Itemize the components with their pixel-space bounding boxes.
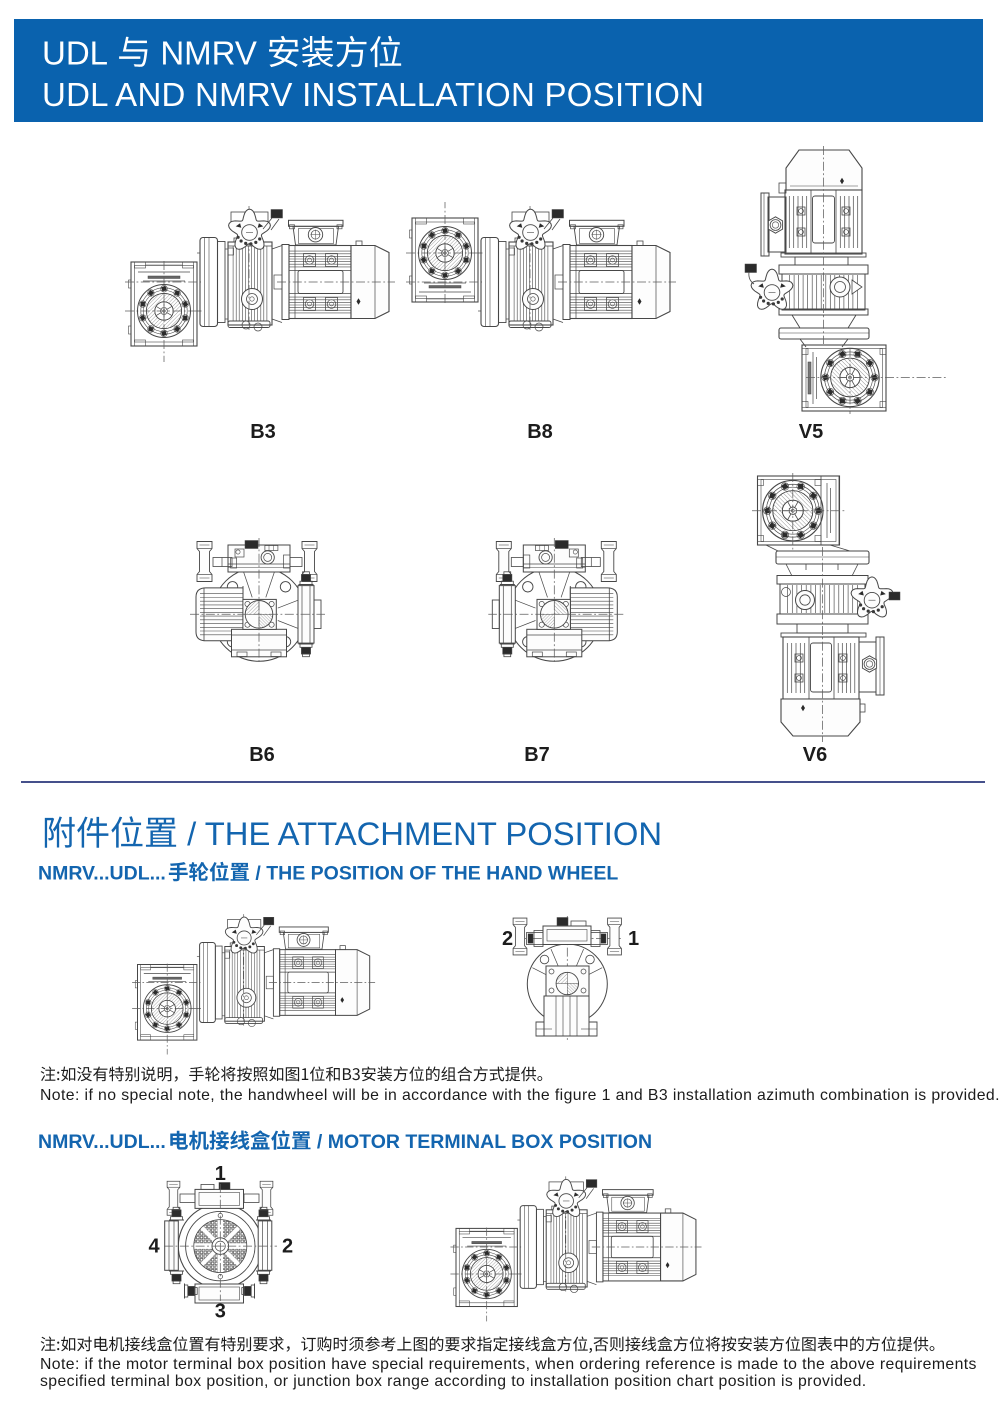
svg-text:/ THE POSITION OF THE HAND WHE: / THE POSITION OF THE HAND WHEEL xyxy=(255,863,618,885)
svg-text:B3: B3 xyxy=(250,421,276,443)
svg-text:V6: V6 xyxy=(803,744,827,766)
svg-text:1: 1 xyxy=(628,928,639,950)
svg-text:Note: if no special note, the: Note: if no special note, the handwheel … xyxy=(40,1087,1000,1104)
svg-text:Note: if the motor terminal bo: Note: if the motor terminal box position… xyxy=(40,1356,977,1373)
svg-text:B6: B6 xyxy=(249,744,275,766)
svg-text:V5: V5 xyxy=(799,421,823,443)
svg-text:NMRV: NMRV xyxy=(160,35,257,72)
svg-text:NMRV...UDL...: NMRV...UDL... xyxy=(38,1131,166,1153)
svg-text:UDL: UDL xyxy=(42,35,108,72)
svg-text:2: 2 xyxy=(502,928,513,950)
svg-text:NMRV...UDL...: NMRV...UDL... xyxy=(38,863,166,885)
svg-text:2: 2 xyxy=(282,1236,293,1258)
svg-text:3: 3 xyxy=(215,1301,226,1323)
svg-text:/ MOTOR TERMINAL BOX POSITION: / MOTOR TERMINAL BOX POSITION xyxy=(317,1131,652,1153)
svg-text:B7: B7 xyxy=(524,744,550,766)
svg-text:B8: B8 xyxy=(527,421,553,443)
svg-text:/ THE ATTACHMENT POSITION: / THE ATTACHMENT POSITION xyxy=(187,815,662,852)
svg-text:4: 4 xyxy=(148,1236,160,1258)
svg-text:1: 1 xyxy=(215,1163,226,1185)
svg-text:specified terminal box positio: specified terminal box position, or junc… xyxy=(40,1373,867,1390)
svg-text:UDL AND NMRV INSTALLATION POSI: UDL AND NMRV INSTALLATION POSITION xyxy=(42,76,704,113)
